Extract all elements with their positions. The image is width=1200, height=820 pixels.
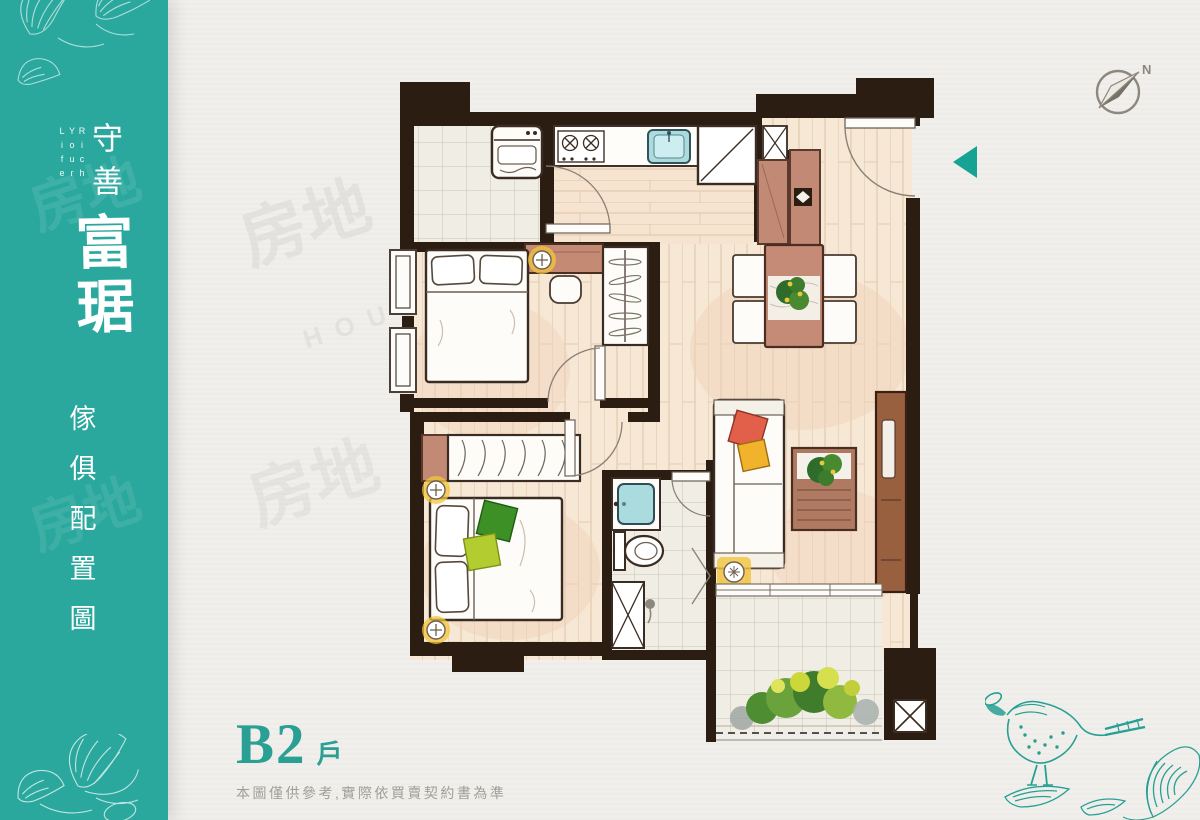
bird-flower-illustration-icon bbox=[985, 685, 1200, 820]
caption-char: 置 bbox=[66, 552, 100, 586]
bed-2 bbox=[430, 498, 562, 620]
floral-ornament-bottom-icon bbox=[0, 734, 168, 820]
floor-surfaces bbox=[410, 116, 912, 732]
tv-cabinet bbox=[876, 392, 906, 592]
caption-char: 圖 bbox=[66, 602, 100, 636]
dining-set bbox=[733, 245, 856, 347]
stool bbox=[550, 276, 581, 303]
ceiling-light-icon bbox=[422, 616, 450, 644]
washing-machine bbox=[492, 126, 542, 178]
compass-icon: N bbox=[1078, 52, 1170, 132]
wardrobe2-side bbox=[422, 435, 448, 481]
wardrobe-1 bbox=[603, 247, 648, 345]
cushion-lime bbox=[463, 533, 500, 570]
coffee-table bbox=[792, 448, 856, 530]
caption-char: 俱 bbox=[66, 452, 100, 486]
floorplan-svg bbox=[370, 70, 940, 754]
service-shaft bbox=[894, 700, 926, 732]
ceiling-light-icon bbox=[528, 246, 556, 274]
pillow-yellow bbox=[738, 439, 770, 471]
wardrobe-2 bbox=[448, 435, 580, 481]
bathroom-sink bbox=[612, 478, 660, 530]
unit-label-block: B2戶 本圖僅供參考,實際依買賣契約書為準 bbox=[236, 712, 506, 803]
caption-char: 配 bbox=[66, 502, 100, 536]
brand-name-large: 富琚 bbox=[57, 211, 143, 340]
entrance-marker-icon bbox=[953, 146, 977, 178]
floral-ornament-top-icon bbox=[0, 0, 168, 104]
kitchen-counter bbox=[554, 126, 698, 166]
bed-1 bbox=[426, 250, 528, 382]
sidebar-caption: 傢 俱 配 置 圖 bbox=[66, 402, 100, 652]
ceiling-light-icon bbox=[422, 476, 450, 504]
unit-suffix: 戶 bbox=[317, 740, 343, 769]
brand-name-small: 守善 bbox=[82, 122, 127, 208]
caption-char: 傢 bbox=[66, 402, 100, 436]
unit-name: B2 bbox=[236, 713, 307, 776]
sidebar: Rich Your Life 守善 富琚 傢 俱 配 置 圖 bbox=[0, 0, 168, 820]
watermark-text: 房地 bbox=[226, 152, 381, 284]
sliding-window bbox=[716, 584, 882, 596]
refrigerator bbox=[698, 126, 756, 184]
watermark-text: 房地 bbox=[234, 412, 389, 544]
compass-north-label: N bbox=[1142, 62, 1151, 77]
kitchen-sink bbox=[648, 130, 690, 163]
ceiling-light-icon bbox=[717, 557, 751, 587]
disclaimer-text: 本圖僅供參考,實際依買賣契約書為準 bbox=[236, 783, 506, 803]
sofa bbox=[714, 400, 784, 568]
